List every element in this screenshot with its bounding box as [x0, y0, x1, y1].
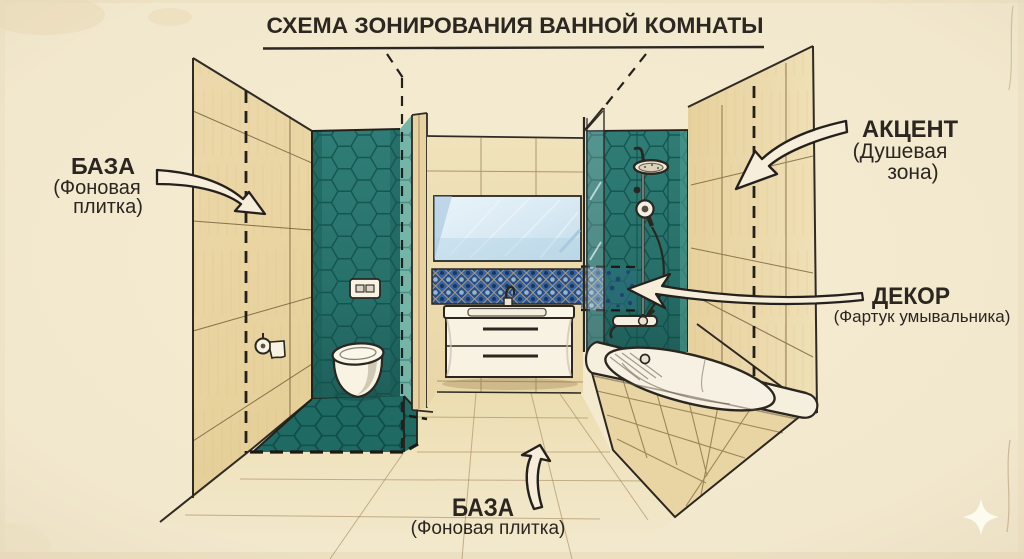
- svg-text:БАЗА: БАЗА: [71, 153, 135, 179]
- svg-text:плитка): плитка): [73, 196, 143, 218]
- svg-text:зона): зона): [887, 161, 938, 184]
- svg-text:(Фартук умывальника): (Фартук умывальника): [834, 307, 1011, 326]
- svg-text:СХЕМА ЗОНИРОВАНИЯ ВАННОЙ КОМНА: СХЕМА ЗОНИРОВАНИЯ ВАННОЙ КОМНАТЫ: [267, 13, 764, 38]
- svg-text:(Фоновая плитка): (Фоновая плитка): [411, 518, 566, 539]
- svg-text:ДЕКОР: ДЕКОР: [872, 283, 950, 310]
- svg-text:(Душевая: (Душевая: [853, 140, 948, 163]
- svg-text:АКЦЕНТ: АКЦЕНТ: [862, 116, 958, 143]
